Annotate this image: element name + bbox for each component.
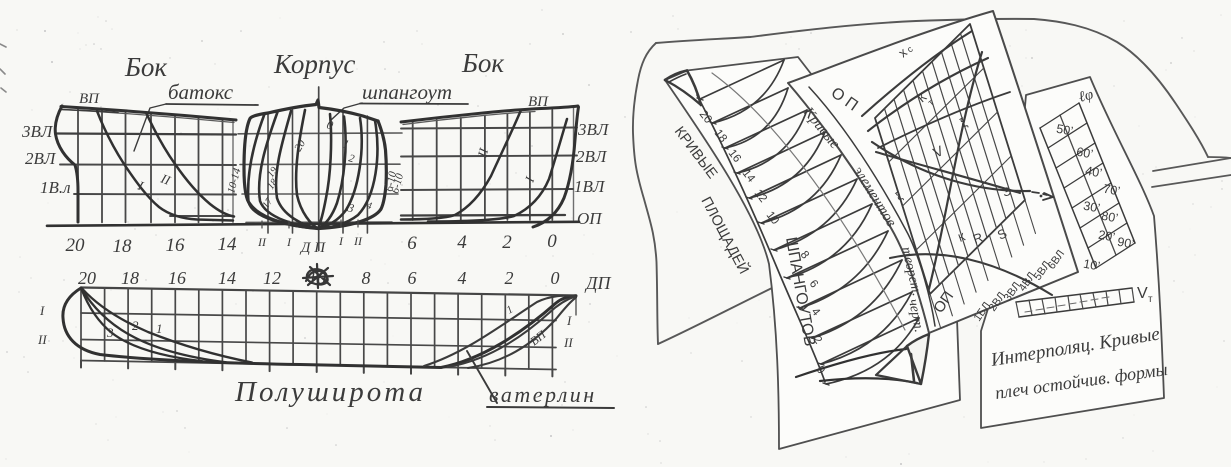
svg-text:18: 18 bbox=[113, 236, 133, 257]
svg-text:50’: 50’ bbox=[1055, 122, 1074, 139]
svg-text:ВП: ВП bbox=[79, 91, 100, 107]
svg-text:16: 16 bbox=[166, 235, 186, 256]
svg-text:V: V bbox=[1137, 285, 1148, 302]
svg-text:3: 3 bbox=[106, 325, 114, 340]
svg-text:1ВЛ: 1ВЛ bbox=[574, 177, 606, 196]
svg-text:20: 20 bbox=[78, 268, 96, 288]
svg-text:18: 18 bbox=[121, 268, 139, 288]
svg-text:4: 4 bbox=[457, 232, 467, 253]
svg-text:20: 20 bbox=[66, 235, 86, 256]
svg-text:I: I bbox=[39, 303, 45, 318]
svg-text:0: 0 bbox=[551, 268, 560, 288]
svg-text:12: 12 bbox=[263, 268, 281, 288]
svg-text:1: 1 bbox=[156, 321, 163, 336]
svg-text:80’: 80’ bbox=[1100, 209, 1119, 226]
svg-text:Полуширота: Полуширота bbox=[234, 376, 426, 408]
svg-text:70’: 70’ bbox=[1102, 182, 1121, 199]
svg-text:II: II bbox=[37, 332, 47, 347]
svg-text:I: I bbox=[566, 313, 572, 328]
svg-text:3ВЛ: 3ВЛ bbox=[21, 122, 54, 141]
svg-text:шпангоут: шпангоут bbox=[362, 80, 452, 104]
svg-text:Бок: Бок bbox=[461, 48, 504, 78]
svg-text:30’: 30’ bbox=[1082, 199, 1101, 216]
svg-text:14: 14 bbox=[218, 268, 236, 288]
svg-text:16: 16 bbox=[168, 268, 186, 288]
svg-text:т: т bbox=[1148, 294, 1153, 305]
svg-text:60’: 60’ bbox=[1075, 145, 1094, 162]
svg-text:20’: 20’ bbox=[1097, 228, 1116, 245]
svg-text:II: II bbox=[257, 235, 267, 249]
svg-text:ватерлин: ватерлин bbox=[489, 382, 597, 407]
svg-text:2: 2 bbox=[505, 268, 514, 288]
svg-text:1В.л: 1В.л bbox=[40, 178, 71, 197]
svg-text:4: 4 bbox=[458, 268, 467, 288]
svg-text:3ВЛ: 3ВЛ bbox=[577, 120, 610, 139]
svg-text:14: 14 bbox=[218, 234, 238, 255]
svg-text:40’: 40’ bbox=[1084, 164, 1103, 181]
svg-text:Бок: Бок bbox=[124, 52, 167, 82]
svg-text:батокс: батокс bbox=[168, 80, 234, 104]
svg-text:ОП: ОП bbox=[577, 209, 603, 228]
svg-text:Д П: Д П bbox=[299, 240, 326, 256]
svg-text:II: II bbox=[353, 234, 363, 248]
svg-text:6: 6 bbox=[408, 268, 417, 288]
svg-text:90’: 90’ bbox=[1116, 235, 1135, 252]
svg-text:Корпус: Корпус bbox=[273, 49, 355, 79]
svg-text:ДП: ДП bbox=[584, 273, 611, 293]
svg-text:II: II bbox=[563, 335, 573, 350]
svg-text:2: 2 bbox=[502, 232, 512, 253]
svg-text:2: 2 bbox=[132, 318, 139, 333]
svg-text:10’: 10’ bbox=[1082, 257, 1101, 274]
svg-text:8: 8 bbox=[362, 268, 371, 288]
svg-text:0: 0 bbox=[547, 231, 557, 252]
svg-text:2ВЛ: 2ВЛ bbox=[25, 149, 57, 168]
svg-text:2ВЛ: 2ВЛ bbox=[576, 147, 608, 166]
svg-text:6: 6 bbox=[407, 233, 417, 254]
